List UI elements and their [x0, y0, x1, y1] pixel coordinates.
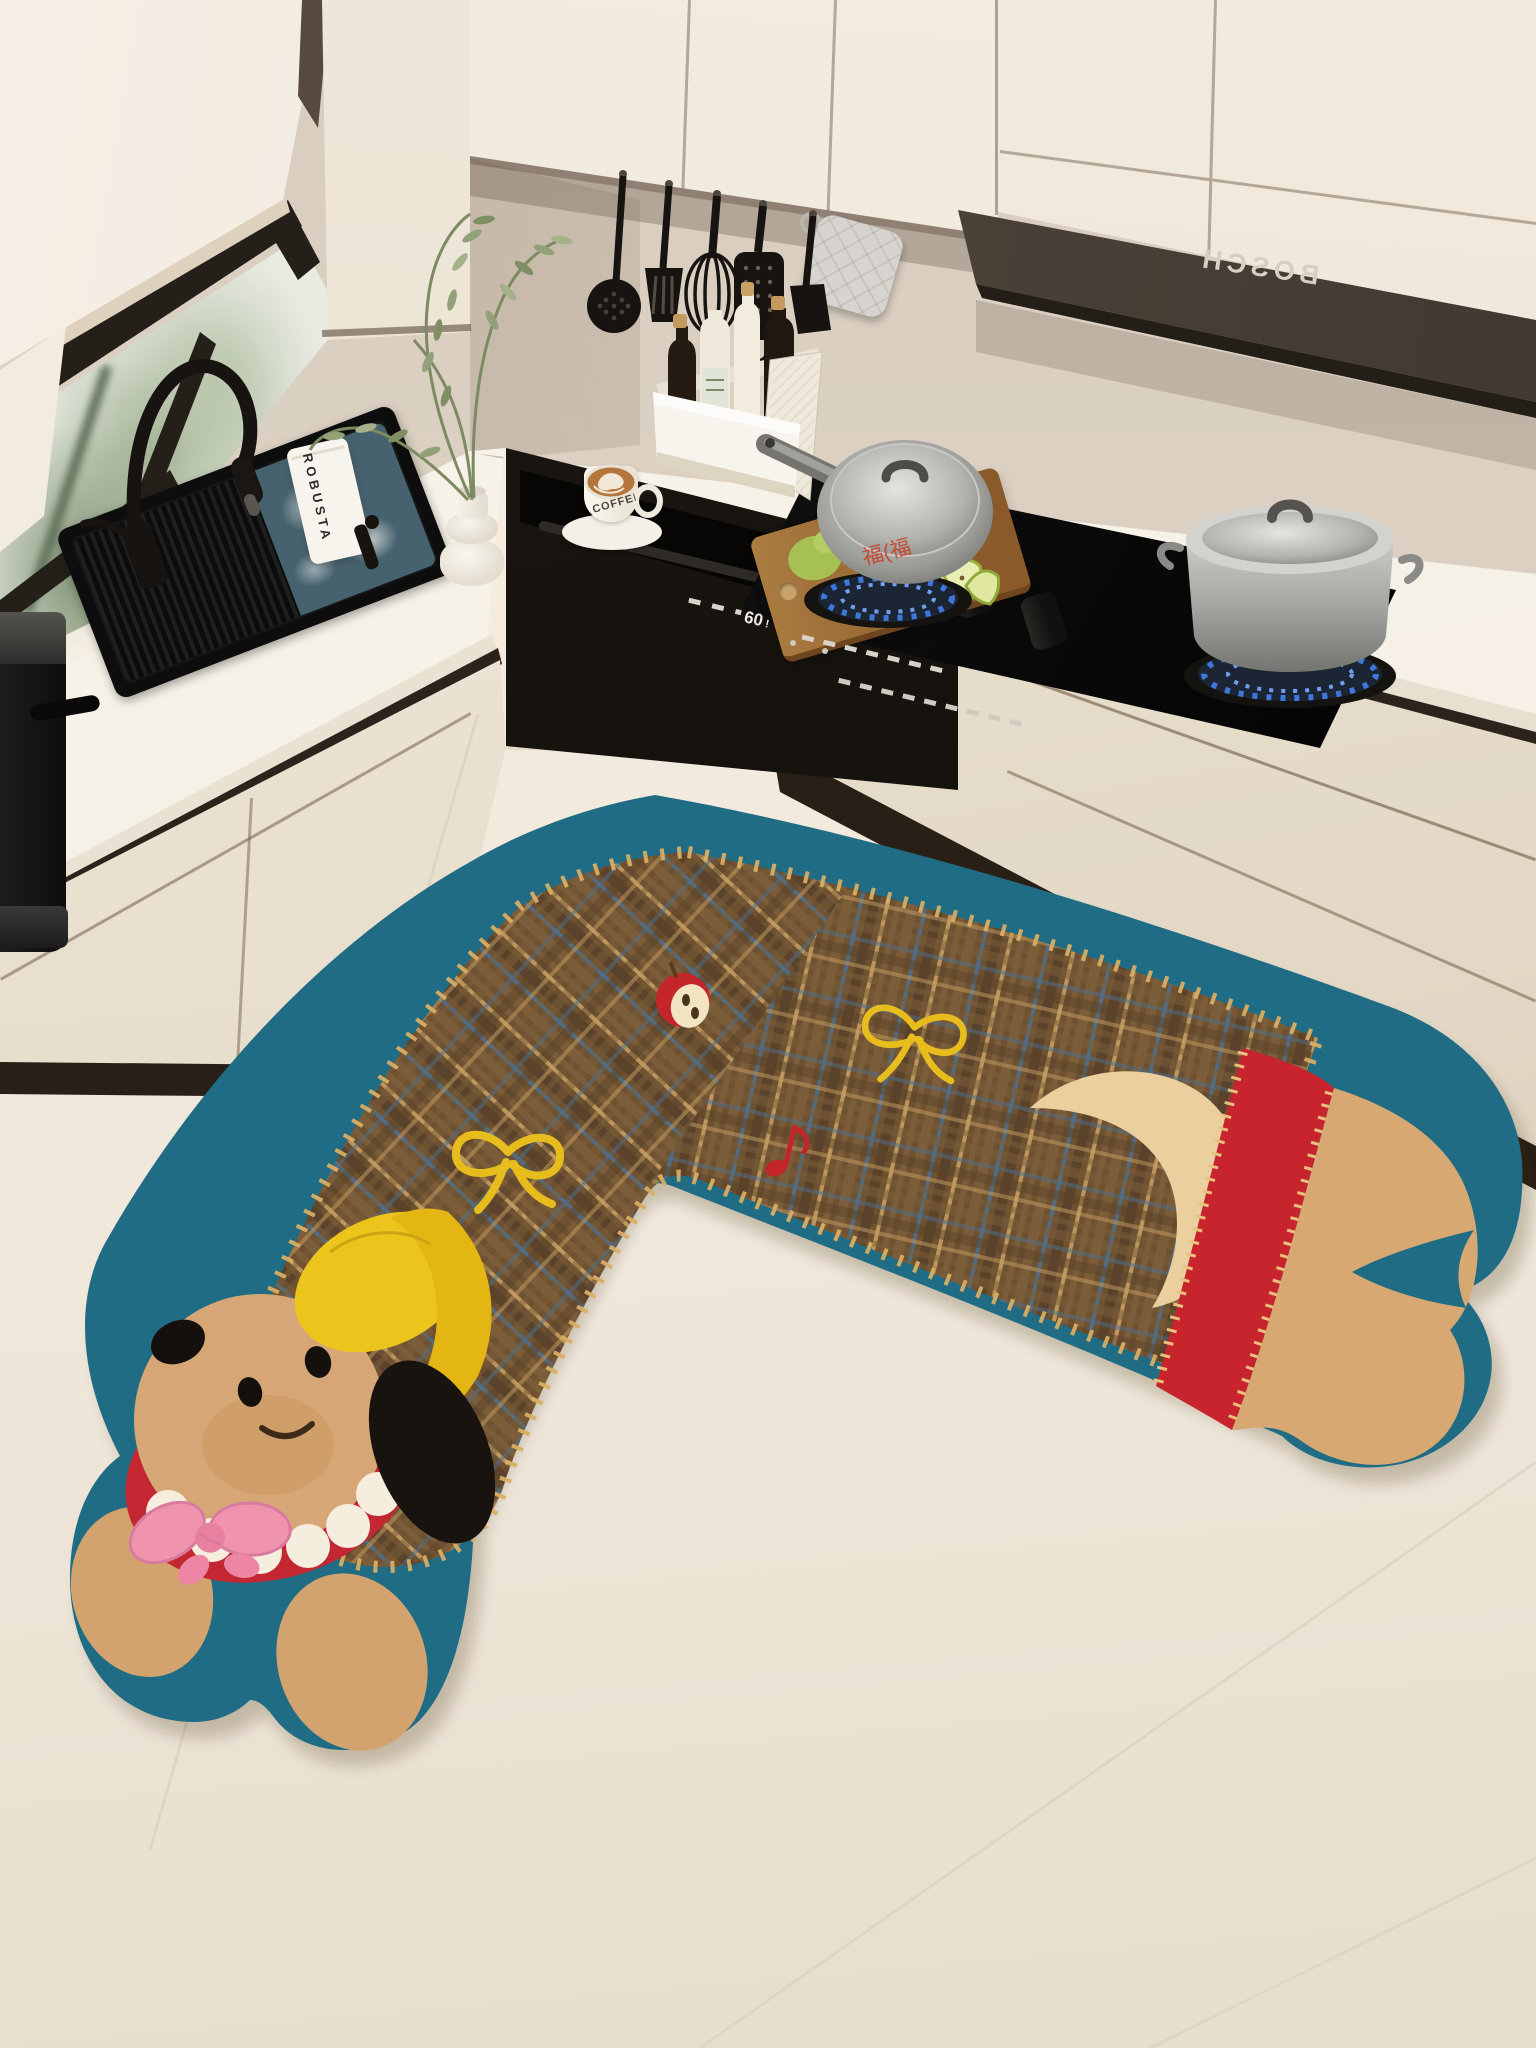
- olive-branches: [310, 214, 574, 500]
- skimmer: [587, 170, 641, 333]
- stockpot: [1161, 505, 1420, 673]
- oven-display-value: 60: [742, 607, 765, 630]
- dog-floor-mat: [52, 795, 1532, 1770]
- olive-leaves: [323, 214, 574, 459]
- soap-tap: [353, 515, 380, 571]
- spatula: [790, 210, 831, 334]
- kitchen-scene: BOSCH ROBUSTA COFFEE 60! 福(福: [0, 0, 1536, 2048]
- vector-layer: [0, 0, 1536, 2048]
- stockpot-station: [1161, 505, 1420, 709]
- slotted-turner: [645, 180, 683, 322]
- oven-indicator-dot: [822, 648, 828, 654]
- oven-indicator-dot: [790, 640, 796, 646]
- saucepan-station: [765, 438, 993, 628]
- dog-muzzle: [202, 1395, 334, 1495]
